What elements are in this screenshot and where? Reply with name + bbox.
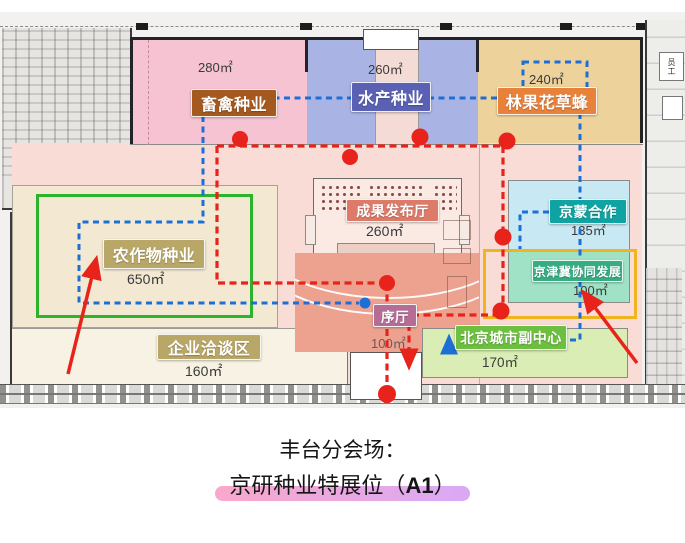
north-entrance-vestibule — [363, 29, 419, 50]
column-mark — [440, 23, 452, 30]
wall — [476, 38, 479, 72]
cad-furniture — [443, 220, 471, 240]
label-jingmeng: 京蒙合作 — [549, 199, 627, 224]
south-entrance-vestibule — [350, 352, 422, 400]
wall — [305, 38, 308, 72]
opening-dashed-line — [148, 40, 149, 145]
cad-restrooms — [646, 268, 682, 400]
wall — [130, 144, 643, 145]
site-boundary-line — [0, 26, 685, 27]
staff-passage-box: 员工 — [659, 52, 684, 81]
caption-line2-pre: 京研种业特展位（ — [229, 473, 405, 498]
area-preface-hall: 100㎡ — [371, 333, 406, 352]
caption-line2-text: 京研种业特展位（A1） — [229, 473, 455, 498]
caption-line2-booth-code: A1 — [405, 473, 433, 498]
label-release-hall: 成果发布厅 — [346, 199, 439, 222]
column-mark — [300, 23, 312, 30]
area-jingjinji: 100㎡ — [573, 280, 608, 299]
floor-plan: 员工 — [0, 0, 685, 420]
label-crop-seed: 农作物种业 — [103, 239, 205, 269]
caption: 丰台分会场： 京研种业特展位（A1） — [0, 436, 685, 500]
label-aquatic-seed: 水产种业 — [351, 82, 431, 112]
south-wall-hatch — [0, 394, 685, 404]
caption-line2-post: ） — [434, 473, 456, 498]
label-business-negotiation: 企业洽谈区 — [157, 334, 261, 360]
label-beijing-subcenter: 北京城市副中心 — [455, 325, 567, 350]
door — [305, 215, 316, 245]
column-mark — [560, 23, 572, 30]
wall — [640, 40, 643, 143]
area-crop-seed: 650㎡ — [127, 269, 164, 289]
area-aquatic: 260㎡ — [368, 59, 403, 78]
cad-furniture — [447, 276, 467, 308]
label-livestock-seed: 畜禽种业 — [191, 89, 277, 117]
caption-line1: 丰台分会场： — [0, 436, 685, 466]
south-wall-hatch — [0, 384, 685, 394]
column-mark — [136, 23, 148, 30]
caption-line2: 京研种业特展位（A1） — [229, 472, 455, 500]
area-release-hall: 260㎡ — [366, 221, 403, 241]
area-beijing-subcenter: 170㎡ — [482, 351, 518, 371]
label-forest-fruit: 林果花草蜂 — [497, 87, 597, 115]
label-preface-hall: 序厅 — [373, 304, 417, 327]
area-livestock: 280㎡ — [198, 57, 233, 76]
area-forest-fruit: 240㎡ — [529, 69, 564, 88]
label-jingjinji: 京津冀协同发展 — [532, 260, 623, 282]
cad-furniture — [443, 248, 471, 264]
area-negotiation: 160㎡ — [185, 361, 222, 381]
wall — [130, 38, 133, 145]
corridor-room-box — [662, 96, 683, 120]
